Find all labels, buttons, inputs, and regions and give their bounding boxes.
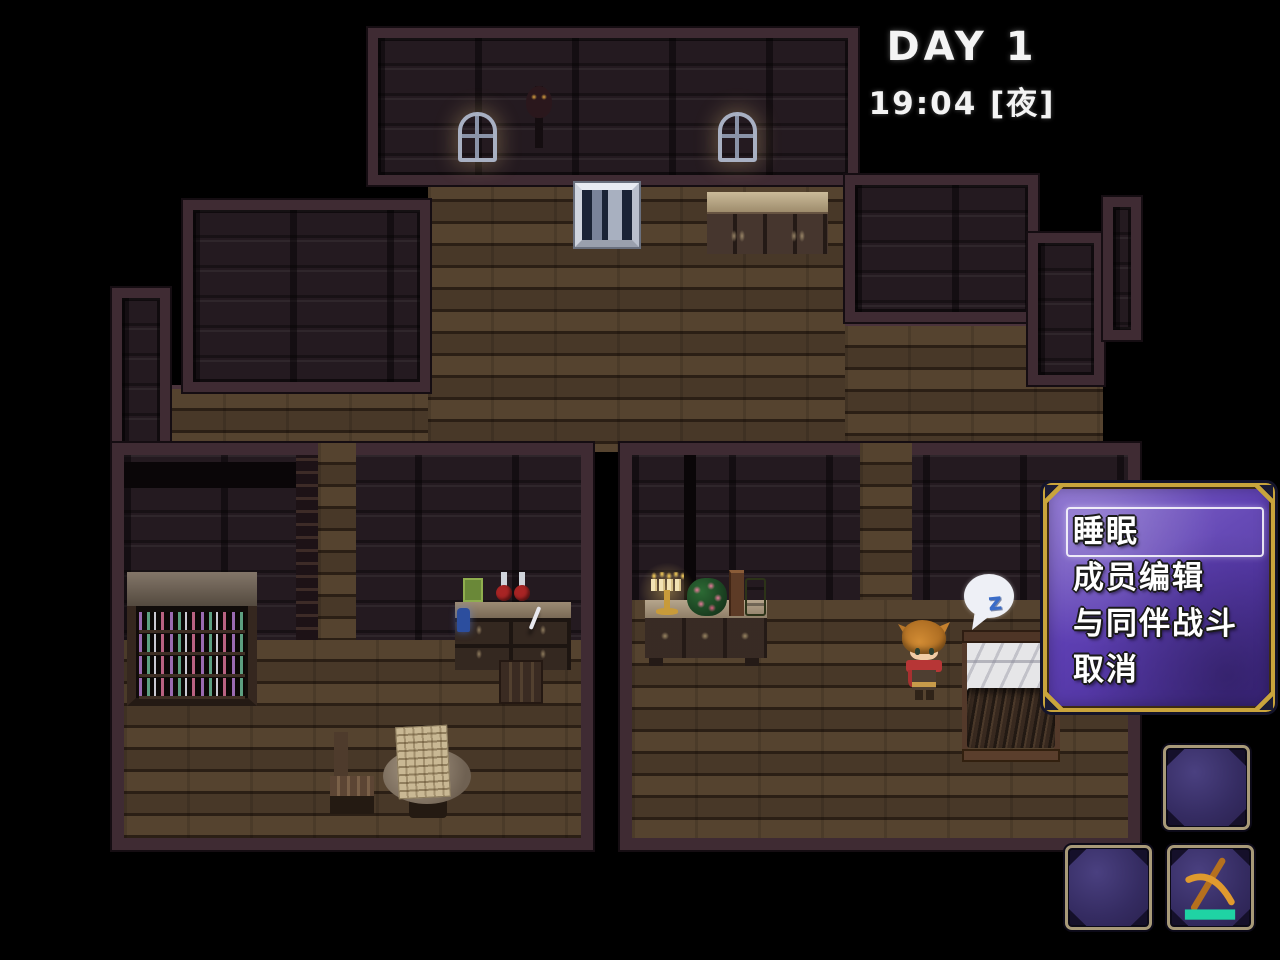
candelabra-icon: [647, 570, 687, 618]
bed-pillow-sheet: [967, 643, 1055, 693]
desk-surface: [455, 602, 571, 618]
attic-window-left: [458, 112, 497, 162]
bl-carved-column: [296, 455, 318, 640]
owl-icon: [524, 86, 554, 148]
right-wing-wall: [845, 175, 1038, 322]
br-doorway-passage: [860, 443, 912, 600]
small-window: [575, 183, 639, 247]
bottle-row: [139, 634, 245, 655]
quick-slot-1[interactable]: [1163, 745, 1250, 830]
table-group: [325, 726, 475, 836]
bottle-row: [139, 656, 245, 677]
sideboard-drawers: [645, 618, 767, 658]
game-screen: { "hud": { "day_label": "DAY 1", "time_l…: [0, 0, 1280, 960]
quick-slot-3-pickaxe[interactable]: [1167, 845, 1254, 930]
bottom-left-room: [112, 443, 593, 850]
menu-item-sleep[interactable]: 睡眠: [1047, 509, 1271, 555]
hall-floor-left: [160, 385, 428, 452]
attic-wall: [368, 28, 858, 185]
slot-background: [1167, 749, 1246, 826]
potion-shelf: [127, 572, 257, 706]
cupboard: [707, 192, 828, 254]
bl-doorway-passage: [318, 443, 356, 640]
menu-item-member-edit[interactable]: 成员编辑: [1047, 555, 1271, 601]
menu-corner-ornament: [1045, 485, 1063, 503]
cupboard-doors: [707, 214, 828, 254]
hero-leg: [926, 690, 934, 700]
bed-footboard: [962, 749, 1060, 762]
red-flask: [513, 572, 531, 602]
menu-corner-ornament: [1255, 692, 1273, 710]
hero-leg: [915, 690, 923, 700]
alchemy-desk: [455, 572, 571, 704]
wooden-chair: [328, 732, 376, 818]
green-canister: [745, 578, 766, 616]
sideboard-feet: [649, 658, 759, 666]
right-step-wall: [1028, 233, 1104, 385]
sleep-bubble: z: [964, 574, 1014, 618]
paper-note: [395, 725, 451, 800]
hero-character: [902, 618, 946, 702]
left-wing-wall: [183, 200, 430, 392]
pickaxe-icon: [1170, 848, 1251, 927]
attic-window-right: [718, 112, 757, 162]
menu-corner-ornament: [1255, 485, 1273, 503]
cupboard-top: [707, 192, 828, 214]
hero-torso: [912, 670, 936, 690]
red-flask: [495, 572, 513, 602]
flower-bush: [687, 578, 727, 616]
menu-corner-ornament: [1045, 692, 1063, 710]
slot-background: [1069, 849, 1148, 926]
quick-slot-2[interactable]: [1065, 845, 1152, 930]
sideboard: [645, 570, 767, 672]
hero-belt: [912, 682, 936, 687]
day-label: DAY 1: [817, 24, 1107, 70]
blue-bottle: [457, 608, 470, 632]
hero-eye: [929, 648, 934, 655]
action-menu-window: 睡眠 成员编辑 与同伴战斗 取消: [1043, 483, 1275, 712]
sleep-z-text: z: [987, 587, 1004, 616]
menu-item-battle-companion[interactable]: 与同伴战斗: [1047, 601, 1271, 647]
owl-body: [526, 86, 552, 118]
shelf-top: [127, 572, 257, 608]
bed-fur-blanket: [967, 688, 1055, 748]
brown-book: [729, 570, 744, 616]
desk-chair: [499, 660, 543, 704]
hud: DAY 1 19:04 [夜]: [817, 24, 1107, 123]
hero-eye: [915, 648, 920, 655]
bottle-row: [139, 678, 245, 699]
hero-hair: [902, 620, 946, 654]
menu-item-cancel[interactable]: 取消: [1047, 647, 1271, 693]
green-book: [463, 578, 483, 602]
far-right-wall-sliver: [1103, 197, 1141, 340]
time-label: 19:04 [夜]: [817, 78, 1107, 123]
bottle-row: [139, 612, 245, 633]
bl-wall-gap: [124, 462, 300, 488]
menu-items: 睡眠 成员编辑 与同伴战斗 取消: [1047, 509, 1271, 693]
